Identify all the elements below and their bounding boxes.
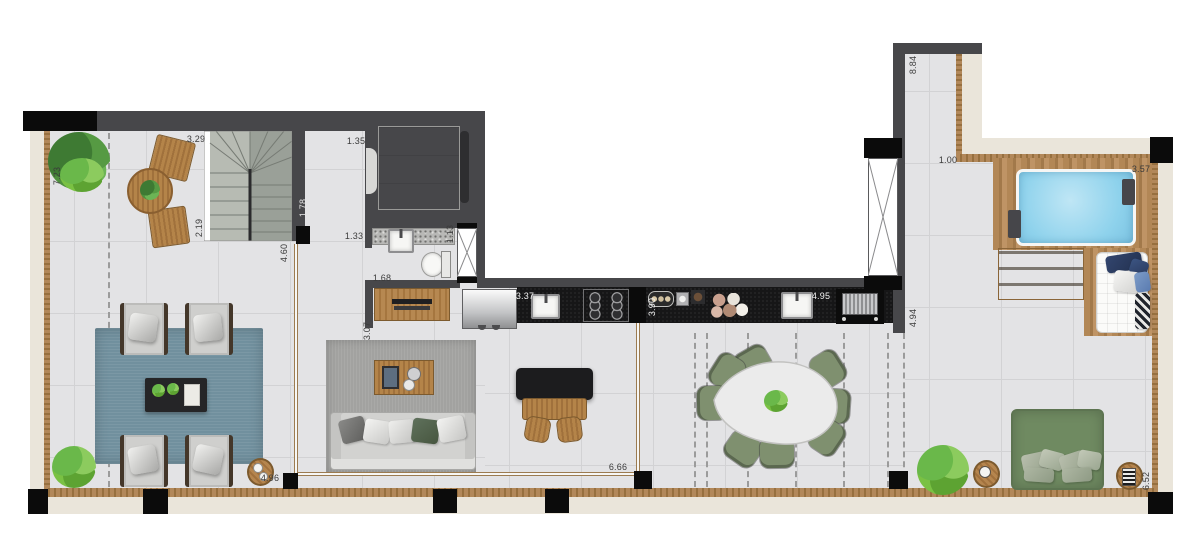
ventilation-shaft-icon xyxy=(457,228,477,277)
sofa-pillow xyxy=(362,418,391,445)
column xyxy=(634,471,652,489)
dimension-label: 6.66 xyxy=(609,462,627,472)
pool-step-pad xyxy=(1122,179,1135,205)
dimension-label: 1.33 xyxy=(345,231,363,241)
dimension-label: 3.37 xyxy=(516,291,534,301)
dimension-label: 4.60 xyxy=(279,244,289,262)
dimension-label: 1.35 xyxy=(347,136,365,146)
column xyxy=(1150,137,1173,163)
grill-knob xyxy=(842,317,846,321)
dimension-label: 2.19 xyxy=(194,219,204,237)
armchair xyxy=(185,303,233,355)
bar-stool xyxy=(523,415,552,444)
column xyxy=(1148,492,1173,514)
lounger-pillow xyxy=(1135,293,1150,329)
counter-plate xyxy=(691,290,705,304)
dimension-label: 3.90 xyxy=(647,298,657,316)
ledge-terrace-h xyxy=(962,138,1150,154)
dimension-label: 1.78 xyxy=(298,199,308,217)
column xyxy=(23,111,97,131)
column xyxy=(28,489,48,514)
shaft-cap xyxy=(457,277,477,283)
kitchen-sink xyxy=(781,292,813,319)
staircase xyxy=(204,131,292,241)
column xyxy=(545,489,569,513)
dimension-label: 3.07 xyxy=(362,322,372,340)
counter-pillar xyxy=(629,287,646,323)
shaft-cap xyxy=(864,276,902,290)
armchair xyxy=(120,435,168,487)
deck-bench xyxy=(998,248,1084,300)
wall-tip xyxy=(296,226,310,244)
dimension-label: 3.57 xyxy=(1132,164,1150,174)
column xyxy=(433,489,457,513)
glass-wall xyxy=(636,323,640,473)
glass-sliding-door xyxy=(298,472,636,476)
dimension-label: 4.94 xyxy=(908,309,918,327)
dimension-label: 7.23 xyxy=(52,167,62,185)
lounger-pillow xyxy=(1134,271,1152,293)
dimension-label: 3.29 xyxy=(187,134,205,144)
ledge-right xyxy=(1158,163,1173,497)
dimension-label: 6.52 xyxy=(1141,472,1151,490)
wall-top-right-cap xyxy=(893,43,982,54)
cooktop xyxy=(583,289,629,322)
ledge-bottom xyxy=(30,497,1173,514)
wall-projection-line xyxy=(903,333,905,487)
grill-grate xyxy=(842,293,878,315)
daybed-pillow xyxy=(1024,467,1055,483)
elevator-door xyxy=(460,131,469,203)
elevator-cab xyxy=(378,126,460,210)
column xyxy=(143,489,168,514)
potted-plant xyxy=(917,445,969,495)
bar-stool xyxy=(556,416,584,444)
column xyxy=(889,471,908,489)
ventilation-shaft-icon xyxy=(868,158,898,276)
door-projection-line xyxy=(694,333,696,487)
sideboard-handle xyxy=(394,306,430,310)
dimension-label: 1.00 xyxy=(939,155,957,165)
centerpiece-plant xyxy=(764,390,788,412)
ledge-left xyxy=(30,131,44,497)
sideboard xyxy=(374,288,450,321)
refrigerator xyxy=(462,289,517,329)
sofa-pillow xyxy=(436,415,467,444)
side-table-book xyxy=(1122,468,1136,486)
potted-plant xyxy=(60,158,104,192)
dimension-label: 1.68 xyxy=(373,273,391,283)
deck-edge-bottom xyxy=(44,488,1158,497)
wall-stairs-right xyxy=(292,131,305,241)
glass-wall xyxy=(294,244,298,475)
ledge-terrace-v xyxy=(962,54,982,138)
elevator-entry xyxy=(366,148,377,194)
door-projection-line xyxy=(887,333,889,487)
column xyxy=(283,473,298,489)
wall-hall-stub xyxy=(365,280,373,328)
side-table-clock xyxy=(979,466,991,478)
dimension-label: 4.96 xyxy=(261,473,279,483)
floor-plan: 3.29 7.23 2.19 1.78 4.60 1.35 1.33 1.68 … xyxy=(0,0,1200,555)
potted-plant xyxy=(52,446,96,488)
deck-edge-left xyxy=(44,131,50,488)
tabletop-plant xyxy=(152,384,165,397)
tabletop-book xyxy=(184,384,200,406)
armchair xyxy=(185,435,233,487)
armchair xyxy=(120,303,168,355)
table-plant xyxy=(140,180,160,200)
kitchen-sink xyxy=(531,294,560,319)
daybed-pillow xyxy=(1062,467,1093,483)
sideboard-handle xyxy=(392,299,432,304)
pool xyxy=(1016,169,1136,246)
counter-plate xyxy=(676,292,689,306)
coffee-table-frame xyxy=(382,366,399,389)
pool-step-pad xyxy=(1008,210,1021,238)
wall-bath-right xyxy=(477,222,485,288)
coffee-table-jar xyxy=(403,379,415,391)
bathroom-sink xyxy=(388,229,414,253)
dimension-label: 4.95 xyxy=(812,291,830,301)
dimension-label: 8.84 xyxy=(908,56,918,74)
counter-bowls xyxy=(710,293,748,320)
bar-table xyxy=(516,368,593,400)
tabletop-plant xyxy=(167,383,179,395)
void-mask xyxy=(982,43,1154,138)
toilet-tank xyxy=(441,251,451,278)
wall-bath-left xyxy=(365,222,372,248)
grill-knob xyxy=(874,317,878,321)
shaft-cap xyxy=(864,138,902,158)
dimension-label: 1.13 xyxy=(445,225,455,243)
